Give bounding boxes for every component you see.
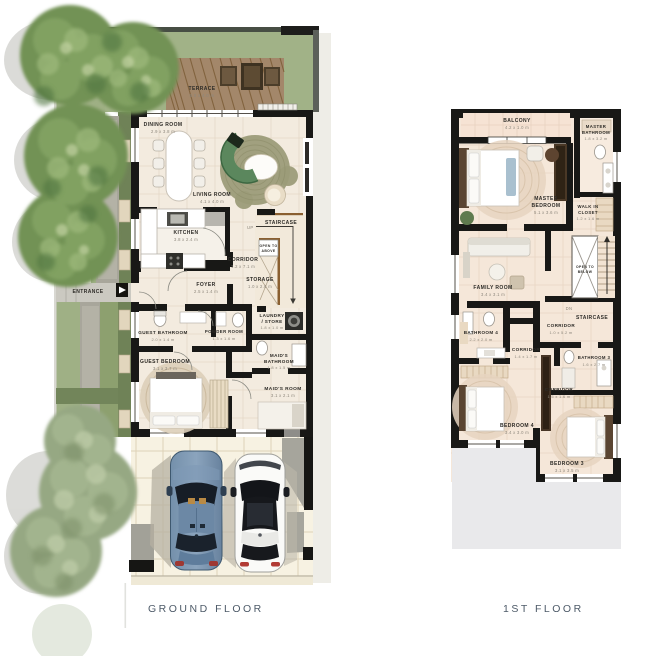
svg-text:STORAGE: STORAGE — [246, 277, 274, 283]
svg-text:3.1 x 3.7 m: 3.1 x 3.7 m — [153, 366, 177, 371]
svg-text:GUEST BATHROOM: GUEST BATHROOM — [138, 330, 187, 335]
svg-text:2.0 x 1.4 m: 2.0 x 1.4 m — [151, 337, 174, 342]
svg-text:1.3 x 1.6 m: 1.3 x 1.6 m — [212, 336, 235, 341]
svg-text:BEDROOM: BEDROOM — [532, 203, 561, 209]
svg-text:1.8 x 1.5 m: 1.8 x 1.5 m — [267, 365, 290, 370]
svg-text:FOYER: FOYER — [196, 282, 215, 288]
svg-text:LIVING ROOM: LIVING ROOM — [193, 192, 231, 198]
svg-text:OPEN TO: OPEN TO — [576, 265, 594, 269]
svg-text:1.8 x 1.0 m: 1.8 x 1.0 m — [260, 325, 283, 330]
svg-text:FAMILY ROOM: FAMILY ROOM — [473, 285, 512, 291]
svg-text:GROUND FLOOR: GROUND FLOOR — [148, 603, 264, 615]
svg-text:UP: UP — [247, 225, 253, 230]
svg-text:ABOVE: ABOVE — [261, 249, 275, 253]
svg-text:OPEN TO: OPEN TO — [260, 244, 278, 248]
svg-text:1.2 x 7.1 m: 1.2 x 7.1 m — [231, 264, 255, 269]
svg-text:CORRIDOR: CORRIDOR — [547, 323, 575, 328]
svg-text:CORRIDOR: CORRIDOR — [512, 347, 540, 352]
svg-text:1.5 x 1.6 m: 1.5 x 1.6 m — [547, 394, 570, 399]
svg-text:BEDROOM 3: BEDROOM 3 — [550, 461, 584, 467]
svg-text:MASTER: MASTER — [586, 124, 607, 129]
svg-text:1.0 x 2.6 m: 1.0 x 2.6 m — [248, 284, 272, 289]
svg-text:2.9 x 3.8 m: 2.9 x 3.8 m — [151, 129, 175, 134]
svg-text:GUEST BEDROOM: GUEST BEDROOM — [140, 359, 190, 365]
svg-text:1.2 x 1.6 m: 1.2 x 1.6 m — [576, 216, 599, 221]
svg-text:DINING ROOM: DINING ROOM — [144, 122, 183, 128]
svg-text:BATHROOM 4: BATHROOM 4 — [464, 330, 499, 335]
svg-text:LAUNDRY: LAUNDRY — [259, 313, 284, 318]
svg-text:CORRIDOR: CORRIDOR — [545, 387, 573, 392]
svg-text:3.1 x 3.5 m: 3.1 x 3.5 m — [555, 468, 579, 473]
svg-text:2.5 x 1.4 m: 2.5 x 1.4 m — [194, 289, 218, 294]
svg-text:1ST FLOOR: 1ST FLOOR — [503, 603, 584, 615]
svg-text:1.0 x 5.2 m: 1.0 x 5.2 m — [549, 330, 572, 335]
svg-text:3.8 x 2.4 m: 3.8 x 2.4 m — [174, 237, 198, 242]
svg-text:BEDROOM 4: BEDROOM 4 — [500, 423, 534, 429]
svg-text:MASTER: MASTER — [534, 196, 558, 202]
svg-text:3.4 x 3.1 m: 3.4 x 3.1 m — [481, 292, 505, 297]
svg-text:BATHROOM 3: BATHROOM 3 — [578, 355, 611, 360]
svg-text:BELOW: BELOW — [578, 270, 593, 274]
svg-text:MAID'S: MAID'S — [270, 353, 288, 358]
svg-text:4.2 x 1.0 m: 4.2 x 1.0 m — [505, 125, 529, 130]
svg-text:3.1 x 2.1 m: 3.1 x 2.1 m — [271, 393, 295, 398]
svg-text:CORRIDOR: CORRIDOR — [228, 257, 258, 263]
svg-text:1.8 x 3.2 m: 1.8 x 3.2 m — [584, 136, 607, 141]
svg-text:TERRACE: TERRACE — [189, 86, 216, 92]
svg-text:POWDER ROOM: POWDER ROOM — [205, 329, 243, 334]
svg-text:/ STORE: / STORE — [261, 319, 282, 324]
svg-text:STAIRCASE: STAIRCASE — [265, 220, 297, 226]
svg-text:1.4 x 1.7 m: 1.4 x 1.7 m — [514, 354, 537, 359]
svg-text:ENTRANCE: ENTRANCE — [73, 289, 104, 295]
svg-text:3.4 x 3.0 m: 3.4 x 3.0 m — [505, 430, 529, 435]
svg-text:KITCHEN: KITCHEN — [173, 230, 198, 236]
svg-text:2.2 x 2.0 m: 2.2 x 2.0 m — [469, 337, 492, 342]
svg-text:BALCONY: BALCONY — [503, 118, 531, 124]
svg-text:BATHROOM: BATHROOM — [264, 359, 294, 364]
svg-text:5.1 x 3.6 m: 5.1 x 3.6 m — [534, 210, 558, 215]
svg-text:STAIRCASE: STAIRCASE — [576, 315, 608, 321]
svg-text:CLOSET: CLOSET — [578, 210, 598, 215]
svg-text:4.1 x 4.0 m: 4.1 x 4.0 m — [200, 199, 224, 204]
svg-text:1.6 x 2.7 m: 1.6 x 2.7 m — [582, 362, 605, 367]
svg-text:WALK IN: WALK IN — [578, 204, 599, 209]
svg-text:MAID'S ROOM: MAID'S ROOM — [264, 386, 301, 392]
svg-text:5.0 x 4.0 m: 5.0 x 4.0 m — [189, 93, 214, 98]
svg-text:DN: DN — [566, 306, 573, 311]
svg-text:BATHROOM: BATHROOM — [582, 130, 610, 135]
